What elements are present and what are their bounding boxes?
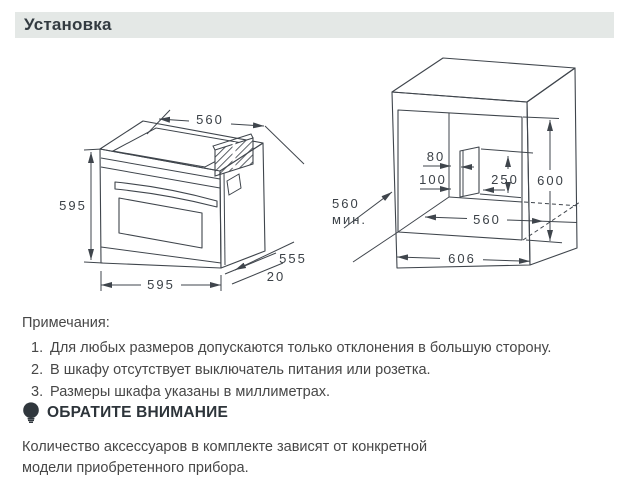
note-item: 3. Размеры шкафа указаны в миллиметрах. bbox=[22, 381, 614, 403]
note-text: Размеры шкафа указаны в миллиметрах. bbox=[50, 381, 614, 403]
dim-label-cabinet-hole-offset-b: 100 bbox=[419, 172, 447, 187]
bulb-icon bbox=[22, 402, 40, 424]
oven-dimension-diagram: 560 595 595 555 20 bbox=[55, 55, 345, 310]
dim-label-cabinet-hole-height: 250 bbox=[491, 172, 519, 187]
oven-drawing bbox=[100, 121, 265, 268]
dim-label-cabinet-niche-height: 600 bbox=[537, 173, 565, 188]
dim-label-oven-side-depth: 555 bbox=[279, 251, 307, 266]
note-text: В шкафу отсутствует выключатель питания … bbox=[50, 359, 614, 381]
section-header-bar: Установка bbox=[15, 12, 614, 38]
note-number: 3. bbox=[22, 381, 50, 403]
note-text: Для любых размеров допускаются только от… bbox=[50, 337, 614, 359]
cabinet-drawing bbox=[392, 58, 580, 268]
dim-label-cabinet-min-depth: 560 bbox=[332, 196, 360, 211]
dim-label-cabinet-hole-offset-a: 80 bbox=[427, 149, 445, 164]
cabinet-dimensions: 560 мин. 80 100 250 600 bbox=[332, 117, 577, 266]
oven-dimensions: 560 595 595 555 20 bbox=[59, 110, 307, 292]
page-title: Установка bbox=[24, 15, 112, 35]
cabinet-dimension-diagram: 560 мин. 80 100 250 600 bbox=[328, 52, 637, 307]
dim-label-cabinet-min-depth-unit: мин. bbox=[332, 212, 367, 227]
oven-handle bbox=[115, 182, 217, 207]
dim-label-cabinet-niche-width: 560 bbox=[473, 212, 501, 227]
notes-section: Примечания: 1. Для любых размеров допуск… bbox=[22, 312, 614, 403]
manual-page: Установка bbox=[0, 0, 637, 490]
dim-label-oven-width: 595 bbox=[147, 277, 175, 292]
dim-label-oven-overhang: 20 bbox=[267, 269, 285, 284]
dim-label-oven-top-depth: 560 bbox=[196, 112, 224, 127]
note-item: 1. Для любых размеров допускаются только… bbox=[22, 337, 614, 359]
attention-text: Количество аксессуаров в комплекте завис… bbox=[22, 437, 477, 479]
oven-door-window bbox=[119, 198, 202, 248]
note-item: 2. В шкафу отсутствует выключатель питан… bbox=[22, 359, 614, 381]
dim-label-oven-height: 595 bbox=[59, 198, 87, 213]
note-number: 1. bbox=[22, 337, 50, 359]
dim-label-cabinet-outer-width: 606 bbox=[448, 251, 476, 266]
attention-header: ОБРАТИТЕ ВНИМАНИЕ bbox=[22, 402, 228, 424]
note-number: 2. bbox=[22, 359, 50, 381]
attention-heading: ОБРАТИТЕ ВНИМАНИЕ bbox=[47, 404, 228, 422]
notes-heading: Примечания: bbox=[22, 312, 614, 334]
